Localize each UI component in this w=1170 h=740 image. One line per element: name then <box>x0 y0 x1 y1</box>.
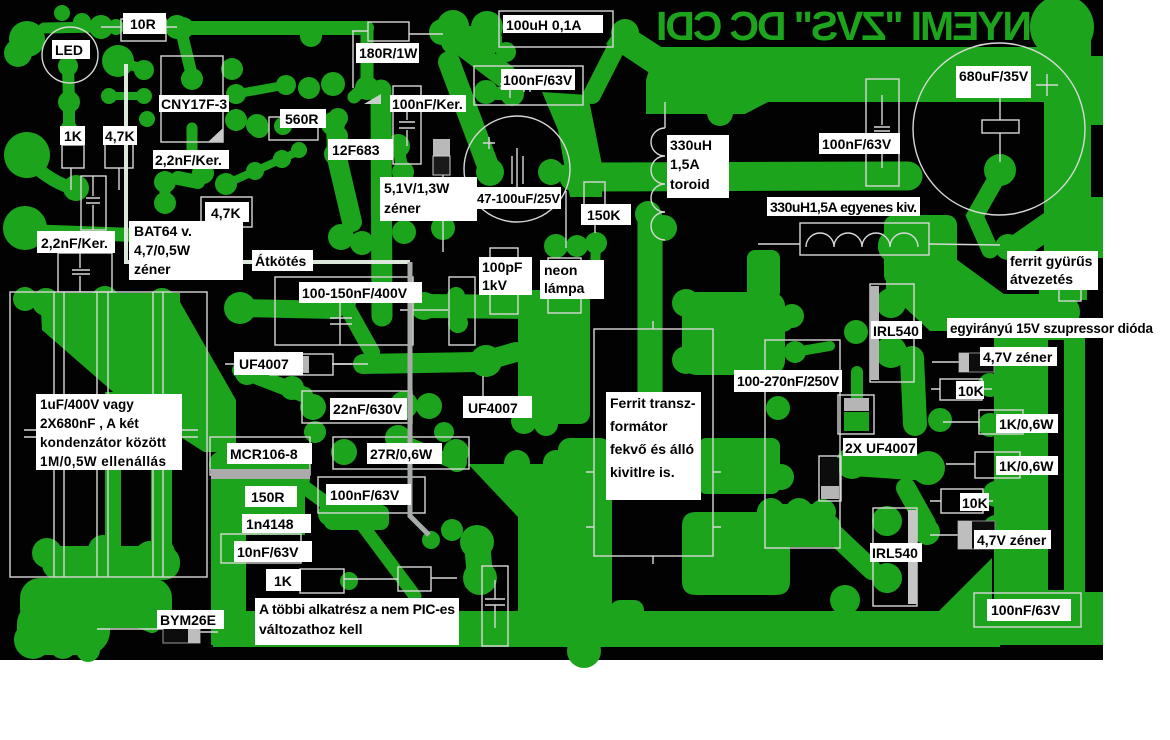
svg-text:330uH: 330uH <box>670 137 712 153</box>
svg-text:ferrit gyürűs: ferrit gyürűs <box>1010 253 1093 269</box>
svg-text:NYEMI "ZVS" DC CDI: NYEMI "ZVS" DC CDI <box>656 3 1032 49</box>
svg-text:A többi alkatrész a nem PIC-es: A többi alkatrész a nem PIC-es <box>259 601 455 617</box>
svg-text:180R/1W: 180R/1W <box>359 45 418 61</box>
svg-text:1K: 1K <box>64 128 82 144</box>
svg-text:1K/0,6W: 1K/0,6W <box>999 458 1054 474</box>
svg-text:Ferrit transz-: Ferrit transz- <box>610 395 696 411</box>
svg-text:100nF/63V: 100nF/63V <box>330 487 400 503</box>
svg-text:BAT64 v.: BAT64 v. <box>134 223 192 239</box>
svg-text:4,7V zéner: 4,7V zéner <box>983 349 1053 365</box>
svg-text:4,7K: 4,7K <box>211 205 241 221</box>
svg-text:47-100uF/25V: 47-100uF/25V <box>477 191 560 206</box>
svg-text:formátor: formátor <box>610 418 668 434</box>
svg-text:kivitlre is.: kivitlre is. <box>610 464 675 480</box>
svg-text:5,1V/1,3W: 5,1V/1,3W <box>384 180 450 196</box>
svg-text:UF4007: UF4007 <box>468 400 518 416</box>
svg-text:1K/0,6W: 1K/0,6W <box>999 416 1054 432</box>
svg-text:1kV: 1kV <box>482 277 508 293</box>
svg-text:100-270nF/250V: 100-270nF/250V <box>737 373 840 389</box>
svg-text:IRL540: IRL540 <box>872 545 918 561</box>
svg-text:22nF/630V: 22nF/630V <box>333 401 403 417</box>
svg-text:1,5A: 1,5A <box>670 156 700 172</box>
svg-text:kondenzátor között: kondenzátor között <box>40 435 167 450</box>
svg-text:fekvő és álló: fekvő és álló <box>610 441 694 457</box>
svg-text:2,2nF/Ker.: 2,2nF/Ker. <box>155 152 222 168</box>
svg-text:2X680nF , A két: 2X680nF , A két <box>40 416 139 431</box>
svg-text:UF4007: UF4007 <box>239 356 289 372</box>
svg-text:1K: 1K <box>274 573 292 589</box>
svg-text:10nF/63V: 10nF/63V <box>237 544 299 560</box>
svg-text:toroid: toroid <box>670 176 710 192</box>
svg-text:100uH 0,1A: 100uH 0,1A <box>506 17 581 33</box>
svg-text:zéner: zéner <box>134 261 171 277</box>
svg-text:100nF/63V: 100nF/63V <box>822 136 892 152</box>
svg-text:100nF/63V: 100nF/63V <box>503 72 573 88</box>
svg-text:100pF: 100pF <box>482 259 523 275</box>
svg-text:150K: 150K <box>587 207 620 223</box>
svg-text:LED: LED <box>55 42 83 58</box>
svg-text:10R: 10R <box>130 16 156 32</box>
svg-text:560R: 560R <box>285 111 318 127</box>
svg-text:2X UF4007: 2X UF4007 <box>845 440 916 456</box>
svg-text:IRL540: IRL540 <box>873 323 919 339</box>
svg-text:1uF/400V vagy: 1uF/400V vagy <box>40 397 134 412</box>
svg-text:1n4148: 1n4148 <box>246 516 294 532</box>
svg-text:lámpa: lámpa <box>544 280 585 296</box>
svg-text:egyirányú 15V szupressor dióda: egyirányú 15V szupressor dióda <box>950 321 1153 336</box>
svg-text:100nF/Ker.: 100nF/Ker. <box>392 96 463 112</box>
svg-text:zéner: zéner <box>384 200 421 216</box>
svg-text:100nF/63V: 100nF/63V <box>991 602 1061 618</box>
svg-text:CNY17F-3: CNY17F-3 <box>161 96 227 112</box>
svg-text:4,7V zéner: 4,7V zéner <box>977 532 1047 548</box>
svg-text:10K: 10K <box>962 495 988 511</box>
svg-text:27R/0,6W: 27R/0,6W <box>370 446 433 462</box>
svg-text:100-150nF/400V: 100-150nF/400V <box>302 285 408 301</box>
svg-text:150R: 150R <box>251 489 284 505</box>
svg-text:változathoz kell: változathoz kell <box>259 621 362 637</box>
svg-text:4,7K: 4,7K <box>105 128 135 144</box>
svg-text:Átkötés: Átkötés <box>255 253 307 269</box>
svg-text:4,7/0,5W: 4,7/0,5W <box>134 242 191 258</box>
svg-text:MCR106-8: MCR106-8 <box>230 446 298 462</box>
svg-text:2,2nF/Ker.: 2,2nF/Ker. <box>41 235 108 251</box>
svg-text:átvezetés: átvezetés <box>1010 271 1073 287</box>
svg-text:neon: neon <box>544 262 577 278</box>
svg-text:BYM26E: BYM26E <box>160 612 216 628</box>
svg-text:330uH1,5A egyenes kiv.: 330uH1,5A egyenes kiv. <box>770 199 917 215</box>
svg-text:12F683: 12F683 <box>332 142 380 158</box>
svg-text:10K: 10K <box>958 383 984 399</box>
svg-text:1M/0,5W ellenállás: 1M/0,5W ellenállás <box>40 454 166 469</box>
svg-text:680uF/35V: 680uF/35V <box>959 68 1029 84</box>
